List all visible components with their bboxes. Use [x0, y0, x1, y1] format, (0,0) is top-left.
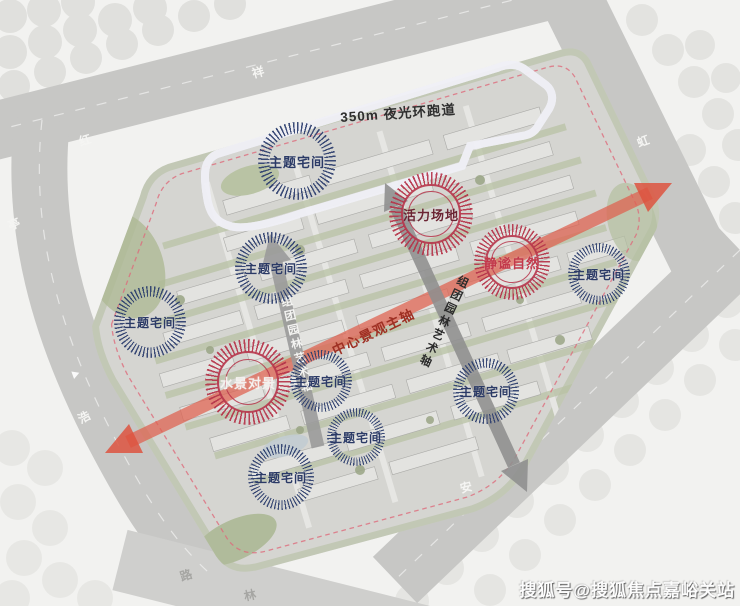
site-plan-diagram: 350m 夜光环跑道 中心景观主轴 组团园林艺术轴 组团园林艺术轴 主题宅间 活… [0, 0, 740, 606]
basemap [0, 0, 740, 606]
